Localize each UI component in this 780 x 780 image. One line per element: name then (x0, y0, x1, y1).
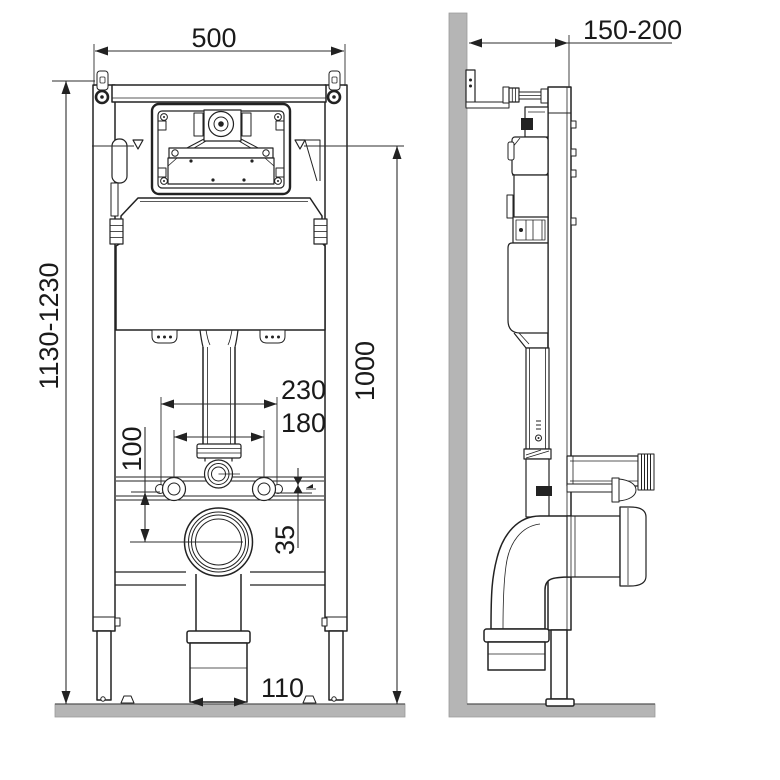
dim-span-outer-label: 230 (281, 375, 326, 405)
level-marker-left (133, 140, 143, 149)
dimensions: 500 1130-1230 1000 230 (34, 15, 682, 707)
dim-span-inner-label: 180 (281, 408, 326, 438)
inlet-knob (521, 118, 533, 130)
drain-socket-side (488, 642, 545, 670)
flush-pipe-side (524, 348, 552, 517)
side-clip-right (314, 219, 327, 244)
side-clip-left (110, 219, 123, 244)
dim-frame-width: 500 (94, 23, 345, 86)
valve-lower-plate (168, 158, 274, 184)
valve-cross-bar (169, 148, 273, 158)
dim-rail-gap-label: 35 (270, 525, 300, 555)
frame-member-side (546, 87, 576, 706)
stud-left (163, 478, 186, 501)
foot-lock-bolt-left (115, 618, 120, 626)
flush-pipe-front (197, 330, 241, 462)
foot-plate-side (546, 699, 574, 706)
datum-flag (306, 484, 313, 488)
top-rail (96, 71, 340, 103)
drain-socket (190, 643, 247, 702)
dim-frame-height-label: 1130-1230 (34, 262, 64, 389)
drain-flange-side (484, 629, 549, 642)
cistern-side (507, 107, 548, 348)
drain-flange (187, 631, 250, 643)
level-marker-right (295, 140, 305, 149)
foot-tube-right (329, 631, 343, 700)
technical-drawing-page: 500 1130-1230 1000 230 (0, 0, 780, 780)
dim-drain-width-label: 110 (261, 673, 304, 703)
wall-bracket (466, 70, 548, 108)
hanger-tab-left (97, 71, 108, 90)
dim-wall-offset-label: 150-200 (583, 15, 682, 45)
foot-pad-left (121, 696, 134, 703)
foot-tube-side (551, 630, 567, 699)
rod-nut (509, 88, 519, 102)
pipe-coupling (197, 444, 241, 458)
flush-bend-fitting (205, 460, 241, 488)
foot-lock-bolt-right (322, 618, 327, 626)
hanger-tab-right (329, 71, 340, 90)
installation-frame-drawing: 500 1130-1230 1000 230 (0, 0, 780, 780)
dim-fixing-span-inner: 180 (174, 408, 326, 478)
flush-plate-window (133, 104, 305, 194)
pipe-clamp (536, 486, 552, 496)
floor-front (55, 704, 405, 717)
dim-frame-height-range: 1130-1230 (34, 81, 95, 704)
foot-tube-left (97, 631, 111, 700)
side-view (449, 13, 655, 717)
dim-frame-width-label: 500 (191, 23, 236, 53)
threaded-end (638, 454, 654, 490)
stud-right (253, 478, 276, 501)
dim-flush-axis-label: 1000 (350, 341, 380, 401)
dim-offset-label: 100 (117, 426, 147, 471)
foot-pad-right (303, 696, 316, 703)
actuator-box-side (513, 217, 548, 243)
wc-outlet-connector (567, 507, 646, 586)
dim-wall-offset: 150-200 (469, 15, 682, 88)
